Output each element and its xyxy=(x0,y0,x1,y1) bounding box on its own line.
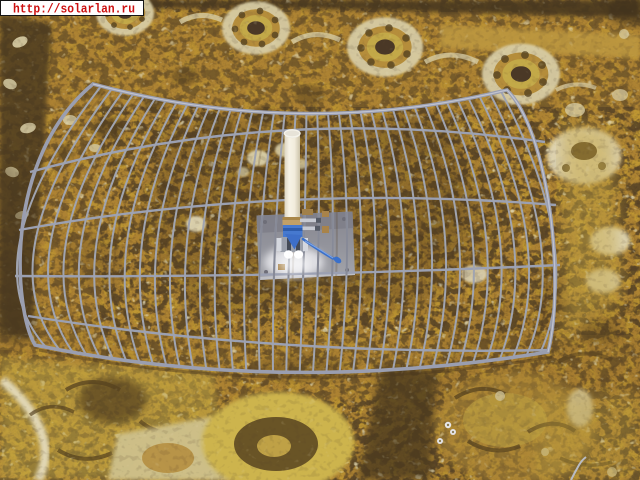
svg-text:http://solarlan.ru: http://solarlan.ru xyxy=(13,1,135,16)
